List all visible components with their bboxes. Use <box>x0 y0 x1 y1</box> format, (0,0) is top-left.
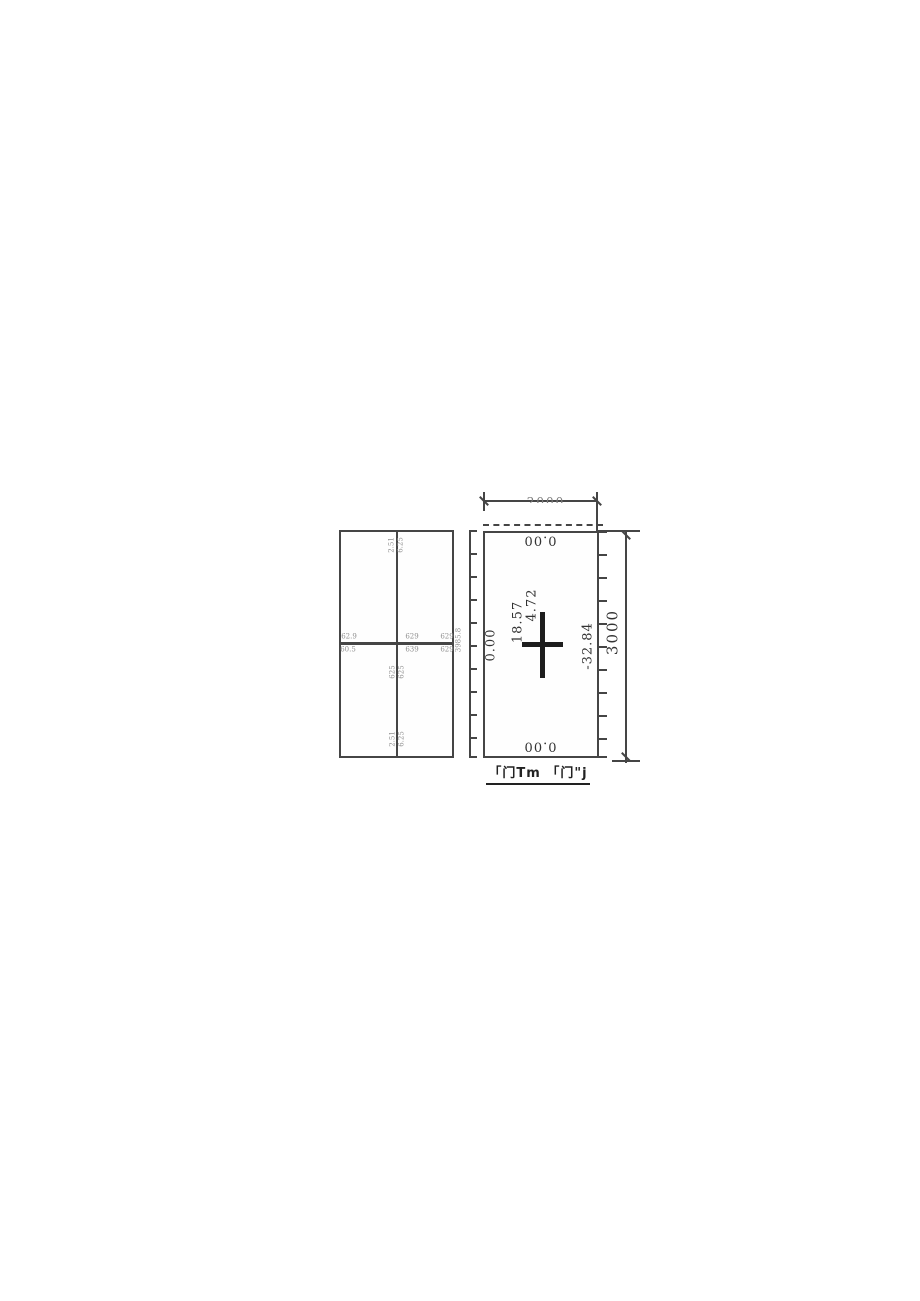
left-panel-centerright-label-2: 629 <box>440 647 453 654</box>
left-panel-belowcenter-label-2: 625 <box>399 665 406 678</box>
cross-value-1: 18.57 <box>512 601 525 643</box>
left-scale-ruler <box>469 530 477 758</box>
left-panel-centerleft-label-2: 60.5 <box>340 647 356 654</box>
document-page: 2.51 6.25 62.9 60.5 629 639 629 629 625 … <box>0 0 920 1301</box>
cross-marker-horizontal <box>522 642 563 647</box>
left-panel-centermid-label-1: 629 <box>405 634 418 641</box>
right-dimension-label: 3000 <box>606 609 621 655</box>
left-panel-horizontal-centerline <box>339 642 454 645</box>
cross-value-2: 4.72 <box>526 589 539 622</box>
top-dimension-label: 2000 <box>516 496 576 503</box>
left-panel-centerleft-label-1: 62.9 <box>341 634 357 641</box>
right-dimension-bottom-extension <box>612 760 640 762</box>
right-dimension-top-extension <box>598 530 640 532</box>
left-panel-top-label-1: 2.51 <box>389 537 396 553</box>
right-panel-bottom-value: 0.00 <box>524 740 557 753</box>
right-panel-left-value: 0.00 <box>485 629 498 662</box>
top-dashed-line <box>483 524 603 526</box>
left-panel-bottom-label-2: 6.25 <box>399 731 406 747</box>
figure-caption: 「门Tm 「门"j <box>486 762 590 785</box>
left-panel-centerright-label-1: 629 <box>440 634 453 641</box>
left-panel-bottom-label-1: 2.51 <box>390 731 397 747</box>
right-panel-right-value: -32.84 <box>582 622 595 670</box>
left-panel-centermid-label-2: 639 <box>405 647 418 654</box>
left-scale-label: 3985.8 <box>456 628 463 653</box>
left-panel-top-label-2: 6.25 <box>398 537 405 553</box>
right-panel-top-value: 0.00 <box>524 534 557 547</box>
right-dimension-line <box>625 531 627 763</box>
left-panel-belowcenter-label-1: 625 <box>390 665 397 678</box>
